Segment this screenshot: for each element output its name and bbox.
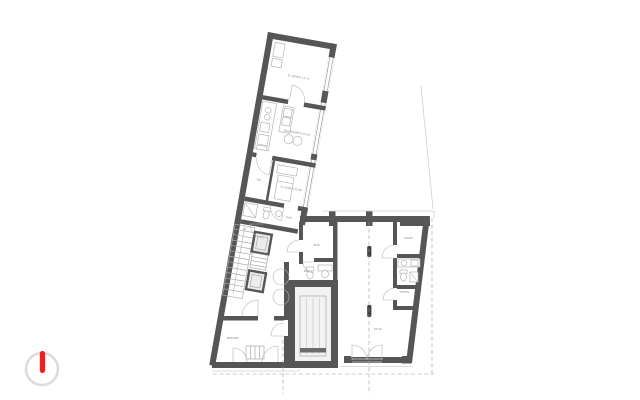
elevator-shaft-a xyxy=(252,232,272,255)
room-label: BUR. xyxy=(314,243,321,247)
landing-steps xyxy=(250,253,268,271)
small-stair xyxy=(246,346,264,359)
room-label: BERGING xyxy=(227,336,239,340)
sink xyxy=(401,260,407,266)
table xyxy=(283,134,293,144)
room-label: WC xyxy=(304,269,309,273)
logo-power-icon xyxy=(40,351,45,373)
section-marker xyxy=(367,246,371,257)
counter xyxy=(318,265,332,271)
section-marker xyxy=(367,305,371,317)
corner-block xyxy=(402,356,411,364)
door-arc xyxy=(233,348,247,362)
door-arc xyxy=(262,346,278,362)
door-arc xyxy=(287,240,299,252)
door-arc xyxy=(290,85,307,102)
table xyxy=(292,136,302,146)
bed xyxy=(273,42,285,58)
sink xyxy=(275,210,282,217)
door-arc xyxy=(271,323,284,336)
door-arc xyxy=(242,300,258,316)
toilet xyxy=(263,211,270,220)
room-label: BAD xyxy=(286,215,292,220)
room-label: SL.KAMER 13.70 xyxy=(287,73,310,81)
central-shaft xyxy=(288,284,338,365)
west-exterior-wall xyxy=(209,32,274,366)
corner-block xyxy=(344,356,351,363)
elevator-shaft-b xyxy=(246,270,266,292)
compass-logo xyxy=(26,351,58,385)
sink xyxy=(322,271,329,278)
room-label: 86.40 xyxy=(374,327,382,331)
room-label: TECHN. xyxy=(399,290,410,294)
door-arc xyxy=(383,288,395,300)
room-label: WASPL. xyxy=(404,236,414,240)
wardrobe xyxy=(277,165,298,176)
room-label: HAL xyxy=(256,177,262,182)
door-arc xyxy=(382,245,395,258)
door-arc xyxy=(254,158,271,175)
toilet xyxy=(401,273,407,281)
property-line xyxy=(421,86,433,209)
wc-fixtures xyxy=(307,265,333,279)
kitchen-fixtures xyxy=(255,101,295,154)
floor-plan-svg: SL.KAMER 13.70 WOONKAMER 26.40 HAL SL.KA… xyxy=(0,0,640,400)
page: SL.KAMER 13.70 WOONKAMER 26.40 HAL SL.KA… xyxy=(0,0,640,400)
